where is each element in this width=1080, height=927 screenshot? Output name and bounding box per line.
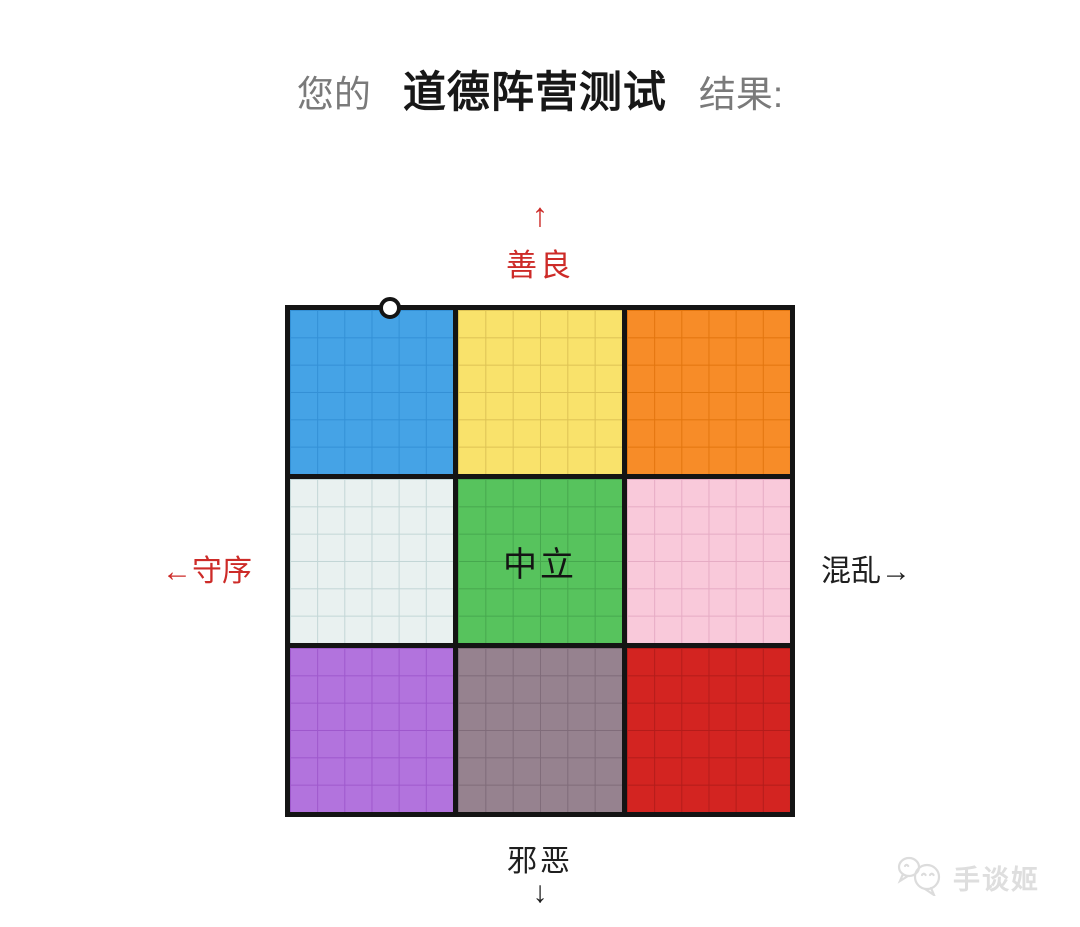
- grid-cell-neutral-evil: [458, 648, 621, 812]
- good-axis-label: 善良: [0, 240, 1080, 285]
- watermark-text: 手谈姬: [953, 858, 1040, 897]
- grid-cell-neutral-good: [458, 310, 621, 474]
- neutral-cell-label: 中立: [503, 537, 577, 586]
- page-title: 您的 道德阵营测试 结果:: [0, 58, 1080, 120]
- grid-cell-chaotic-neutral: [627, 479, 790, 643]
- alignment-grid: 中立: [285, 305, 795, 817]
- result-marker: [379, 297, 401, 319]
- chaotic-axis-label: 混乱→: [821, 546, 911, 590]
- speech-bubble-faces-icon: [894, 854, 948, 901]
- watermark: 手谈姬: [894, 854, 1040, 901]
- title-main: 道德阵营测试: [403, 58, 667, 120]
- grid-cell-lawful-evil: [290, 648, 453, 812]
- title-prefix: 您的: [297, 64, 371, 118]
- alignment-result-figure: 您的 道德阵营测试 结果: ↑ 善良 ←守序 混乱→ 中立: [0, 0, 1080, 927]
- lawful-axis-label: ←守序: [162, 546, 252, 590]
- good-axis-arrow-icon: ↑: [0, 196, 1080, 234]
- grid-cell-true-neutral: 中立: [458, 479, 621, 643]
- grid-cell-chaotic-evil: [627, 648, 790, 812]
- grid-cell-lawful-neutral: [290, 479, 453, 643]
- title-suffix: 结果:: [699, 64, 783, 118]
- grid-cell-chaotic-good: [627, 310, 790, 474]
- grid-cell-lawful-good: [290, 310, 453, 474]
